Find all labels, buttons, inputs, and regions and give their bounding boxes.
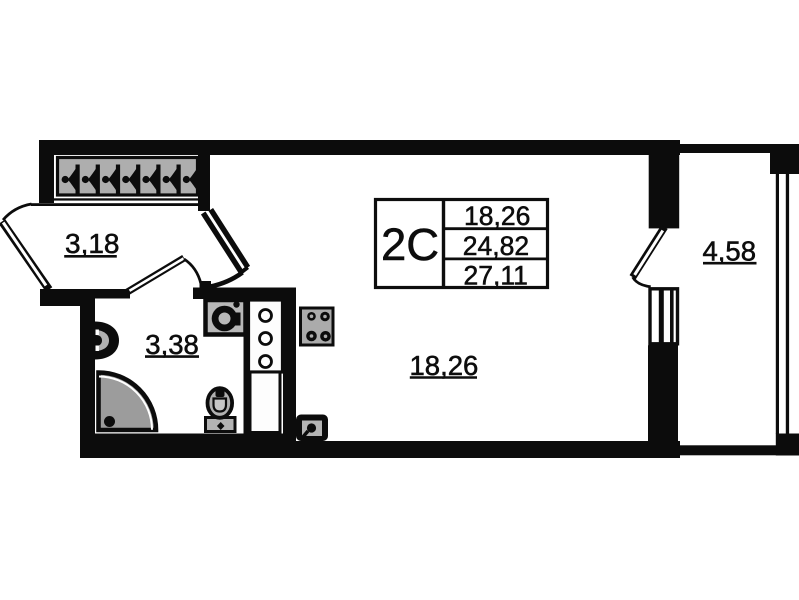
svg-text:3,18: 3,18 <box>65 228 120 259</box>
svg-text:4,58: 4,58 <box>703 236 757 267</box>
svg-text:24,82: 24,82 <box>463 231 529 261</box>
svg-text:18,26: 18,26 <box>464 201 530 231</box>
svg-text:27,11: 27,11 <box>464 261 528 291</box>
svg-text:2С: 2С <box>381 219 439 270</box>
